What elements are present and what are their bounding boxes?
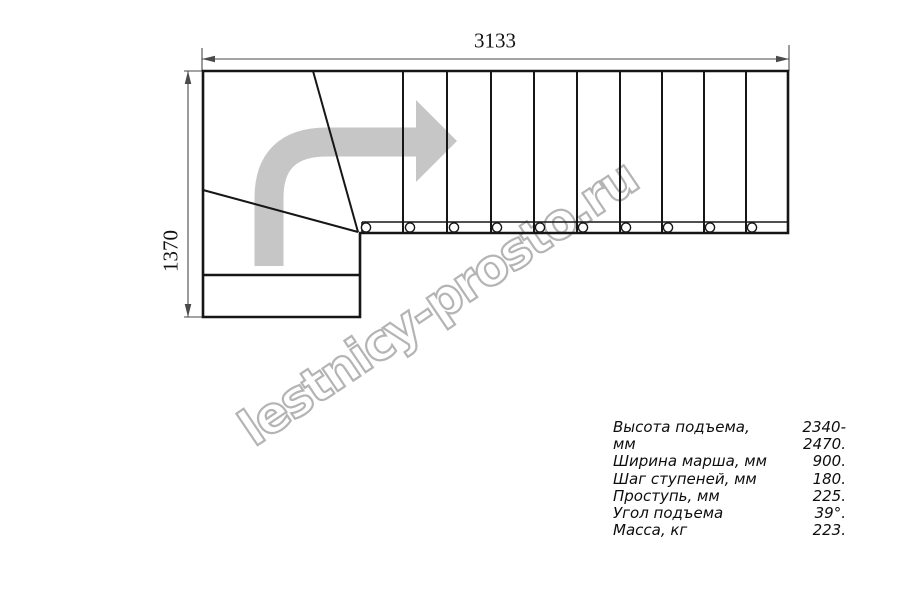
- direction-arrow: [269, 100, 457, 266]
- width-arrow-right-icon: [776, 56, 789, 63]
- spec-row-height: Высота подъема, мм 2340-2470.: [613, 419, 846, 453]
- staircase-linework: [203, 71, 788, 317]
- mount-circle: [492, 223, 501, 232]
- spec-label: Проступь, мм: [613, 488, 720, 505]
- spec-label: Ширина марша, мм: [613, 453, 767, 470]
- spec-label: Шаг ступеней, мм: [613, 471, 757, 488]
- stair-outline: [203, 71, 788, 317]
- spec-row-flight-width: Ширина марша, мм 900.: [613, 453, 846, 470]
- direction-arrow-band: [269, 142, 419, 266]
- depth-arrow-bottom-icon: [185, 304, 192, 317]
- spec-value: 223.: [813, 522, 846, 539]
- mount-circle: [747, 223, 756, 232]
- mount-circle: [663, 223, 672, 232]
- mount-circles: [361, 223, 756, 232]
- mount-circle: [535, 223, 544, 232]
- depth-extension-lines: [184, 71, 204, 317]
- dimension-width-label: 3133: [474, 29, 516, 54]
- spec-row-tread: Проступь, мм 225.: [613, 488, 846, 505]
- dimension-depth-label: 1370: [159, 230, 184, 272]
- spec-row-mass: Масса, кг 223.: [613, 522, 846, 539]
- spec-row-step-rise: Шаг ступеней, мм 180.: [613, 471, 846, 488]
- spec-table: Высота подъема, мм 2340-2470. Ширина мар…: [613, 419, 846, 539]
- mount-circle: [705, 223, 714, 232]
- spec-label: Масса, кг: [613, 522, 687, 539]
- mount-circle: [578, 223, 587, 232]
- depth-arrow-top-icon: [185, 71, 192, 84]
- spec-row-angle: Угол подъема 39°.: [613, 505, 846, 522]
- spec-value: 900.: [813, 453, 846, 470]
- staircase-drawing-canvas: lestnicy-prosto.ru: [0, 0, 900, 600]
- direction-arrow-head-icon: [416, 100, 457, 182]
- spec-value: 180.: [813, 471, 846, 488]
- spec-label: Высота подъема, мм: [613, 419, 766, 453]
- mount-circle: [361, 223, 370, 232]
- width-arrow-left-icon: [202, 56, 215, 63]
- spec-label: Угол подъема: [613, 505, 723, 522]
- spec-value: 2340-2470.: [766, 419, 846, 453]
- straight-flight-tread-lines: [403, 71, 746, 233]
- spec-value: 39°.: [815, 505, 846, 522]
- spec-value: 225.: [813, 488, 846, 505]
- mount-circle: [405, 223, 414, 232]
- mount-circle: [621, 223, 630, 232]
- mount-circle: [449, 223, 458, 232]
